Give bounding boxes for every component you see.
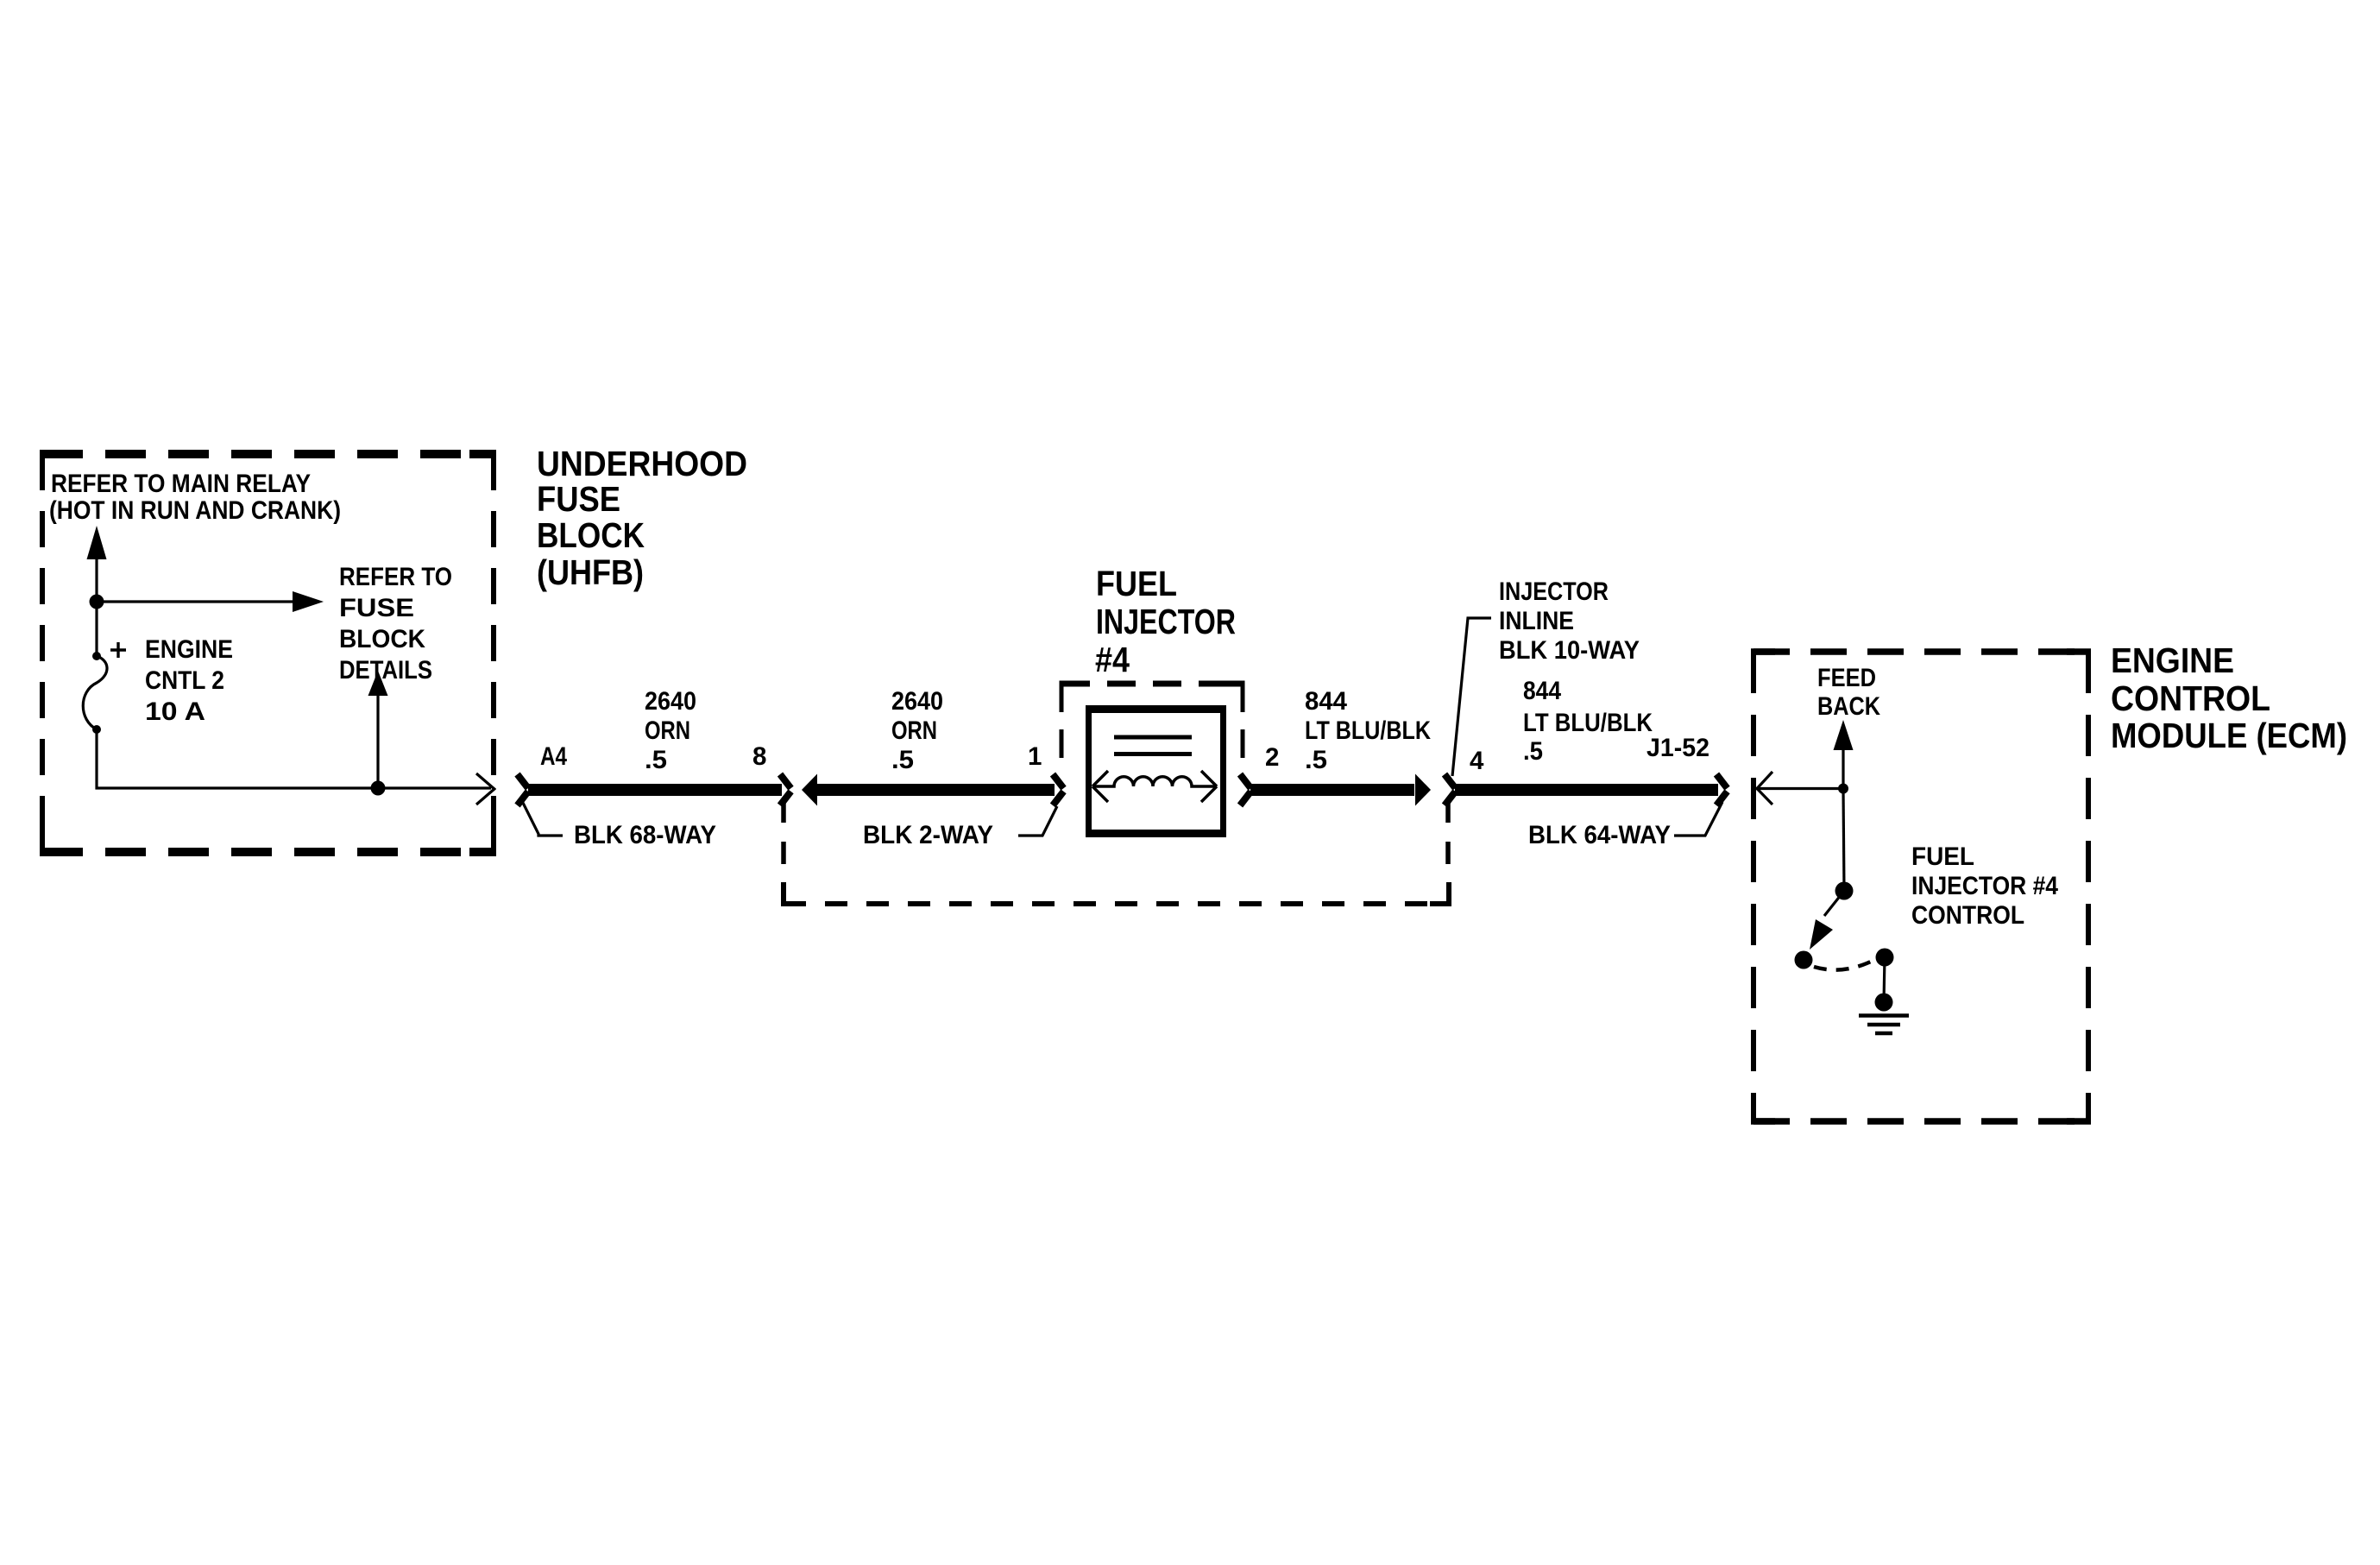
svg-text:4: 4 <box>1470 747 1484 775</box>
svg-text:(HOT IN RUN AND CRANK): (HOT IN RUN AND CRANK) <box>49 496 341 525</box>
svg-text:REFER TO MAIN RELAY: REFER TO MAIN RELAY <box>51 470 311 498</box>
svg-text:BACK: BACK <box>1817 692 1881 721</box>
svg-text:CONTROL: CONTROL <box>2111 678 2270 718</box>
svg-text:CNTL 2: CNTL 2 <box>145 666 224 695</box>
svg-text:INLINE: INLINE <box>1499 607 1574 635</box>
svg-text:FUEL: FUEL <box>1911 842 1974 871</box>
svg-text:REFER TO: REFER TO <box>339 563 452 591</box>
svg-text:CONTROL: CONTROL <box>1911 901 2024 930</box>
svg-text:LT BLU/BLK: LT BLU/BLK <box>1305 716 1432 745</box>
svg-text:.5: .5 <box>645 746 667 774</box>
svg-text:BLK 64-WAY: BLK 64-WAY <box>1528 821 1671 849</box>
svg-text:.5: .5 <box>891 746 914 774</box>
svg-text:INJECTOR: INJECTOR <box>1096 602 1236 641</box>
svg-text:844: 844 <box>1523 677 1562 705</box>
svg-text:2640: 2640 <box>891 687 943 716</box>
svg-text:INJECTOR #4: INJECTOR #4 <box>1911 872 2059 900</box>
svg-text:BLK 68-WAY: BLK 68-WAY <box>574 821 716 849</box>
svg-text:ORN: ORN <box>645 716 690 745</box>
svg-text:BLK 10-WAY: BLK 10-WAY <box>1499 636 1640 665</box>
svg-text:.5: .5 <box>1523 737 1543 766</box>
svg-text:FEED: FEED <box>1817 664 1876 692</box>
svg-text:DETAILS: DETAILS <box>339 656 432 685</box>
svg-text:INJECTOR: INJECTOR <box>1499 577 1609 606</box>
svg-text:844: 844 <box>1305 687 1348 716</box>
svg-text:(UHFB): (UHFB) <box>537 552 644 592</box>
svg-text:FUSE: FUSE <box>339 594 414 622</box>
svg-text:2640: 2640 <box>645 687 696 716</box>
svg-text:BLOCK: BLOCK <box>537 515 645 555</box>
svg-text:A4: A4 <box>540 742 567 771</box>
svg-text:10 A: 10 A <box>145 697 205 726</box>
svg-text:BLK 2-WAY: BLK 2-WAY <box>863 821 993 849</box>
svg-text:UNDERHOOD: UNDERHOOD <box>537 444 747 483</box>
svg-text:FUEL: FUEL <box>1096 564 1177 603</box>
svg-text:.5: .5 <box>1305 746 1327 774</box>
svg-text:2: 2 <box>1265 743 1279 772</box>
svg-text:BLOCK: BLOCK <box>339 625 426 653</box>
svg-text:ENGINE: ENGINE <box>145 635 233 664</box>
svg-text:ORN: ORN <box>891 716 937 745</box>
svg-text:MODULE (ECM): MODULE (ECM) <box>2111 716 2347 755</box>
svg-text:ENGINE: ENGINE <box>2111 641 2234 680</box>
svg-text:J1-52: J1-52 <box>1646 734 1709 762</box>
svg-text:1: 1 <box>1028 742 1042 771</box>
svg-text:LT BLU/BLK: LT BLU/BLK <box>1523 709 1653 737</box>
svg-text:#4: #4 <box>1095 640 1130 679</box>
svg-text:8: 8 <box>752 742 766 771</box>
svg-text:FUSE: FUSE <box>537 479 620 519</box>
